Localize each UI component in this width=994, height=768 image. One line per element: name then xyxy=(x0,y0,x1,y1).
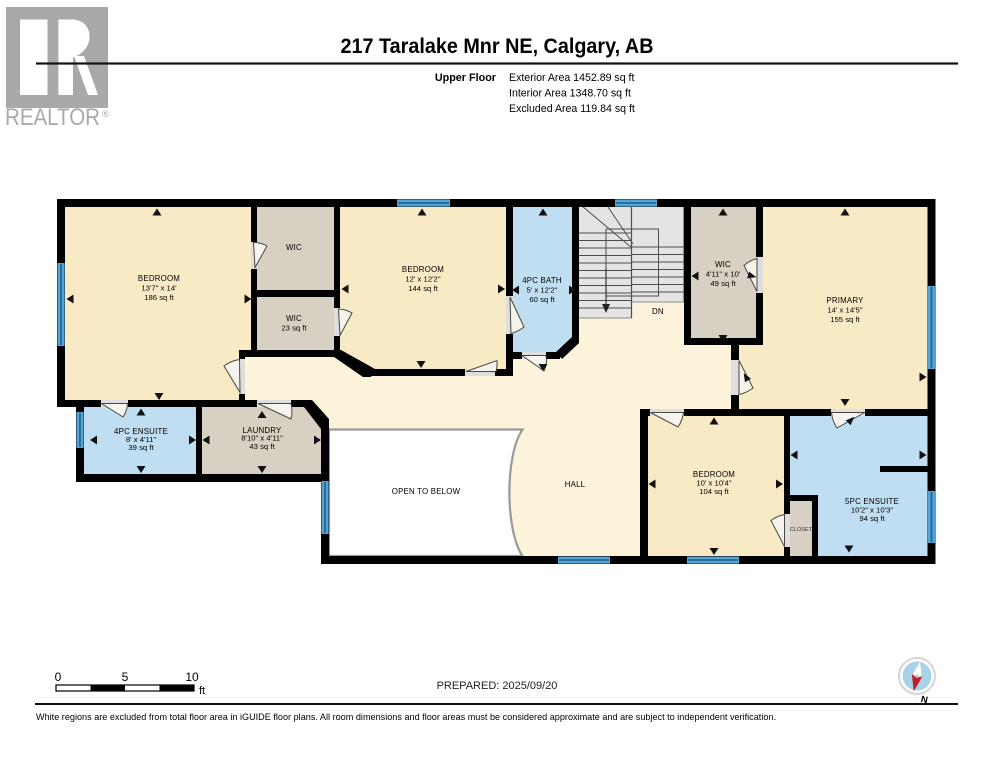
svg-text:217 Taralake Mnr NE, Calgary,: 217 Taralake Mnr NE, Calgary, AB xyxy=(341,35,654,58)
svg-text:PRIMARY: PRIMARY xyxy=(826,296,864,305)
svg-text:12' x 12'2": 12' x 12'2" xyxy=(405,275,440,284)
svg-text:5: 5 xyxy=(122,670,129,684)
svg-text:BEDROOM: BEDROOM xyxy=(402,265,444,274)
svg-text:13'7" x 14': 13'7" x 14' xyxy=(141,284,177,293)
svg-text:0: 0 xyxy=(55,670,62,684)
svg-text:5' x 12'2": 5' x 12'2" xyxy=(527,286,558,295)
svg-text:ft: ft xyxy=(199,685,205,697)
svg-text:14' x 14'5": 14' x 14'5" xyxy=(827,306,862,315)
svg-text:CLOSET: CLOSET xyxy=(790,527,813,533)
svg-text:155 sq ft: 155 sq ft xyxy=(830,315,860,324)
svg-text:144 sq ft: 144 sq ft xyxy=(408,284,438,293)
svg-text:WIC: WIC xyxy=(286,314,302,323)
svg-text:4PC BATH: 4PC BATH xyxy=(522,276,562,285)
svg-text:Excluded Area 119.84 sq ft: Excluded Area 119.84 sq ft xyxy=(509,103,635,115)
svg-text:®: ® xyxy=(102,109,109,119)
svg-text:Exterior Area 1452.89 sq ft: Exterior Area 1452.89 sq ft xyxy=(509,72,634,84)
svg-text:49 sq ft: 49 sq ft xyxy=(710,279,736,288)
svg-text:39 sq ft: 39 sq ft xyxy=(128,443,154,452)
svg-text:4'11" x 10': 4'11" x 10' xyxy=(706,270,741,279)
svg-text:60 sq ft: 60 sq ft xyxy=(529,295,555,304)
svg-text:DN: DN xyxy=(652,307,664,316)
svg-text:Interior Area 1348.70 sq ft: Interior Area 1348.70 sq ft xyxy=(509,88,631,100)
svg-text:10: 10 xyxy=(185,670,199,684)
svg-text:REALTOR: REALTOR xyxy=(5,104,100,131)
svg-text:WIC: WIC xyxy=(286,243,302,252)
svg-text:186 sq ft: 186 sq ft xyxy=(144,293,174,302)
svg-text:White regions are excluded fro: White regions are excluded from total fl… xyxy=(36,712,776,722)
svg-text:WIC: WIC xyxy=(715,260,731,269)
svg-text:43 sq ft: 43 sq ft xyxy=(249,442,275,451)
svg-text:BEDROOM: BEDROOM xyxy=(138,274,180,283)
svg-text:PREPARED: 2025/09/20: PREPARED: 2025/09/20 xyxy=(437,680,558,692)
svg-text:23 sq ft: 23 sq ft xyxy=(281,324,307,333)
svg-text:Upper Floor: Upper Floor xyxy=(435,72,497,84)
svg-text:94 sq ft: 94 sq ft xyxy=(859,514,885,523)
svg-text:OPEN TO BELOW: OPEN TO BELOW xyxy=(392,487,461,496)
svg-text:104 sq ft: 104 sq ft xyxy=(699,487,729,496)
svg-text:HALL: HALL xyxy=(565,480,586,489)
